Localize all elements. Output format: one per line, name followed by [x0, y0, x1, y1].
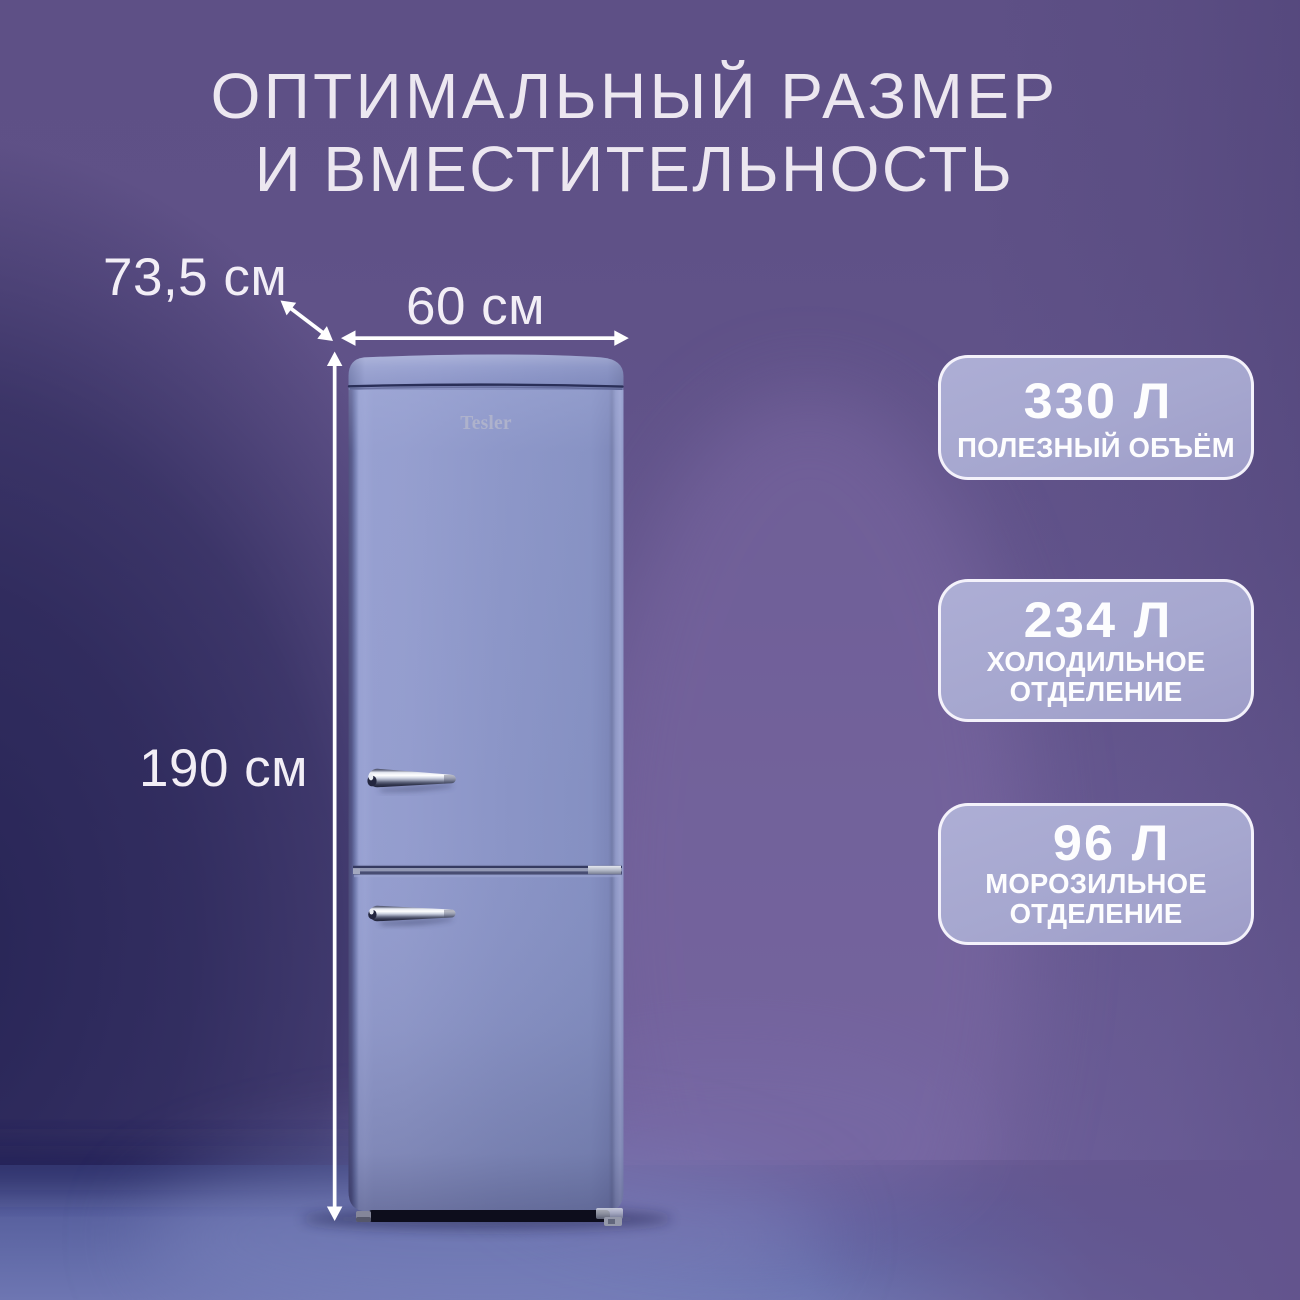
svg-text:Tesler: Tesler [460, 413, 512, 434]
